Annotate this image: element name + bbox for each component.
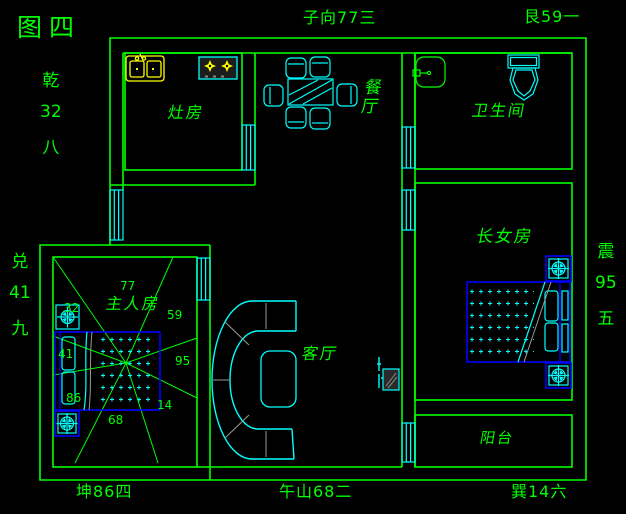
star-number-e: 95: [175, 355, 190, 367]
compass-label-left-lower: 兑 41 九: [9, 247, 31, 339]
pillow: [545, 323, 558, 351]
star-number-w: 41: [58, 348, 73, 360]
compass-label-right: 震 95 五: [595, 237, 617, 329]
nightstand: [546, 256, 571, 281]
dining-chair: [337, 84, 357, 106]
figure-title: 图四: [17, 15, 81, 40]
window: [402, 423, 415, 462]
compass-label-top: 子向77三: [303, 10, 376, 26]
dining-chair: [286, 107, 306, 128]
wash-basin: [413, 57, 445, 87]
window: [197, 258, 210, 300]
compass-label-bottom-left: 坤86四: [76, 484, 132, 500]
toilet: [508, 55, 539, 100]
star-number-n: 77: [120, 280, 135, 292]
room-label-living: 客厅: [301, 346, 340, 362]
star-number-s: 68: [108, 414, 123, 426]
dining-chair: [286, 58, 306, 78]
gas-stove: [199, 57, 237, 79]
sofa: [212, 301, 296, 459]
room-label-master: 主人房: [105, 296, 162, 312]
room-label-eldest-daughter: 长女房: [475, 229, 535, 246]
dining-chair: [310, 108, 330, 129]
room-label-balcony: 阳台: [479, 431, 516, 446]
compass-label-top-right: 艮59一: [524, 9, 580, 25]
compass-label-bottom-center: 午山68二: [279, 484, 352, 500]
room-label-bathroom: 卫生间: [471, 103, 528, 119]
floor-plan-drawing: [0, 0, 626, 514]
lamp-icon: [548, 365, 569, 386]
kitchen-sink: [126, 54, 164, 81]
nightstand: [546, 363, 571, 388]
star-number-nw: 32: [64, 302, 79, 314]
compass-label-bottom-right: 巽14六: [511, 484, 567, 500]
star-number-ne: 59: [167, 309, 182, 321]
room-label-kitchen: 灶房: [167, 105, 206, 121]
dining-chair: [264, 85, 283, 106]
compass-label-left-upper: 乾 32 八: [40, 66, 62, 158]
window: [110, 190, 123, 240]
window: [242, 125, 255, 170]
window: [402, 190, 415, 230]
floor-plan-canvas: 图四 子向77三 艮59一 坤86四 午山68二 巽14六 乾 32 八 兑 4…: [0, 0, 626, 514]
dining-chair: [310, 57, 330, 77]
window: [402, 127, 415, 168]
bed-daughter: [467, 282, 570, 362]
star-number-sw: 86: [66, 392, 81, 404]
tv: [377, 357, 399, 390]
nightstand: [55, 411, 79, 436]
dining-table: [288, 79, 333, 105]
lamp-icon: [548, 258, 569, 279]
coffee-table: [261, 351, 296, 407]
star-number-se: 14: [157, 399, 172, 411]
lamp-icon: [57, 413, 78, 434]
